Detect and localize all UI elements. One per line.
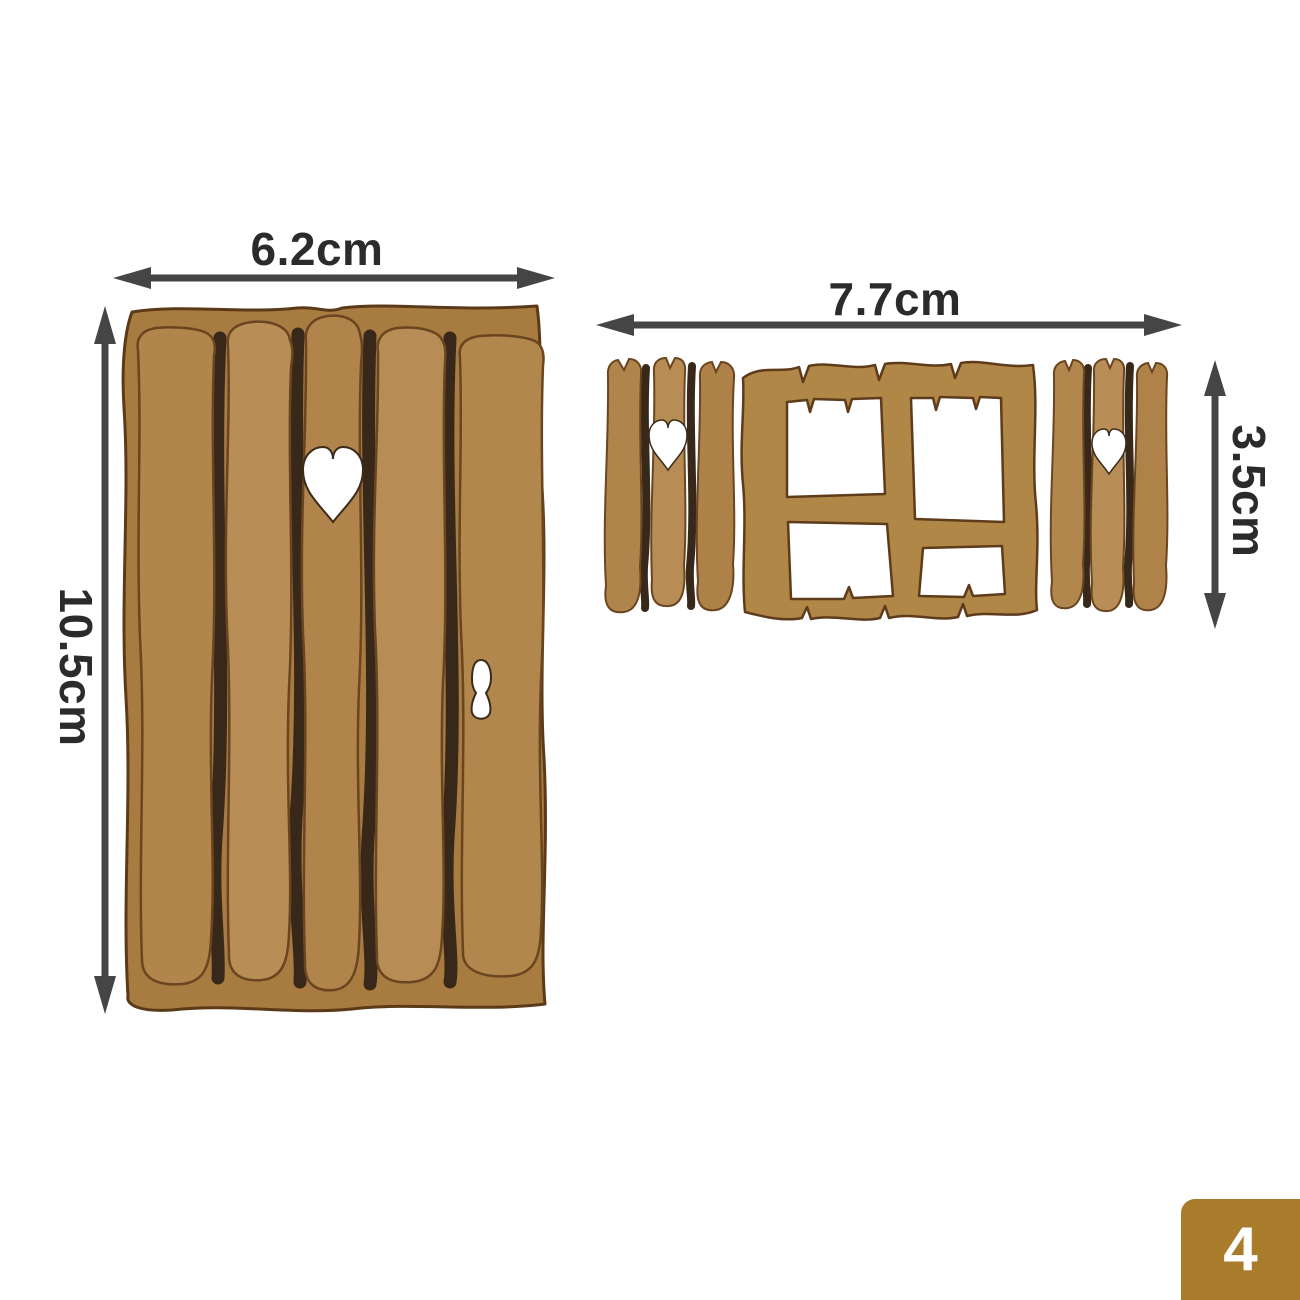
shutter-plank	[1051, 360, 1085, 608]
arrowhead-up-icon	[1204, 360, 1226, 396]
shutter-left-graphic	[598, 352, 738, 622]
page-number: 4	[1223, 1219, 1257, 1281]
keyhole-cutout-icon	[472, 660, 491, 719]
door-height-label: 10.5cm	[49, 587, 103, 746]
arrowhead-right-icon	[1144, 314, 1182, 336]
arrowhead-left-icon	[596, 314, 634, 336]
shutter-plank	[1133, 363, 1167, 610]
window-graphic	[733, 354, 1047, 626]
arrowhead-down-icon	[1204, 593, 1226, 629]
door-width-arrow	[111, 264, 557, 292]
page-number-badge: 4	[1181, 1199, 1300, 1300]
door-plank-5	[460, 335, 544, 976]
window-set-height-label: 3.5cm	[1222, 425, 1276, 558]
shutter-plank	[1091, 359, 1125, 611]
arrowhead-left-icon	[113, 267, 151, 289]
door-plank-2	[226, 322, 293, 981]
shutter-plank	[697, 362, 735, 610]
window-frame	[742, 362, 1038, 620]
shutter-right-graphic	[1046, 354, 1172, 622]
door-plank-3	[302, 316, 362, 991]
arrowhead-right-icon	[517, 267, 555, 289]
door-plank-1	[138, 327, 215, 984]
window-set-width-arrow	[594, 311, 1184, 339]
shutter-plank	[605, 359, 642, 612]
door-plank-4	[374, 328, 446, 983]
shutter-plank	[651, 358, 685, 606]
product-image: 6.2cm 10.5cm 7.7cm	[0, 0, 1300, 1300]
door-graphic	[112, 298, 560, 1020]
